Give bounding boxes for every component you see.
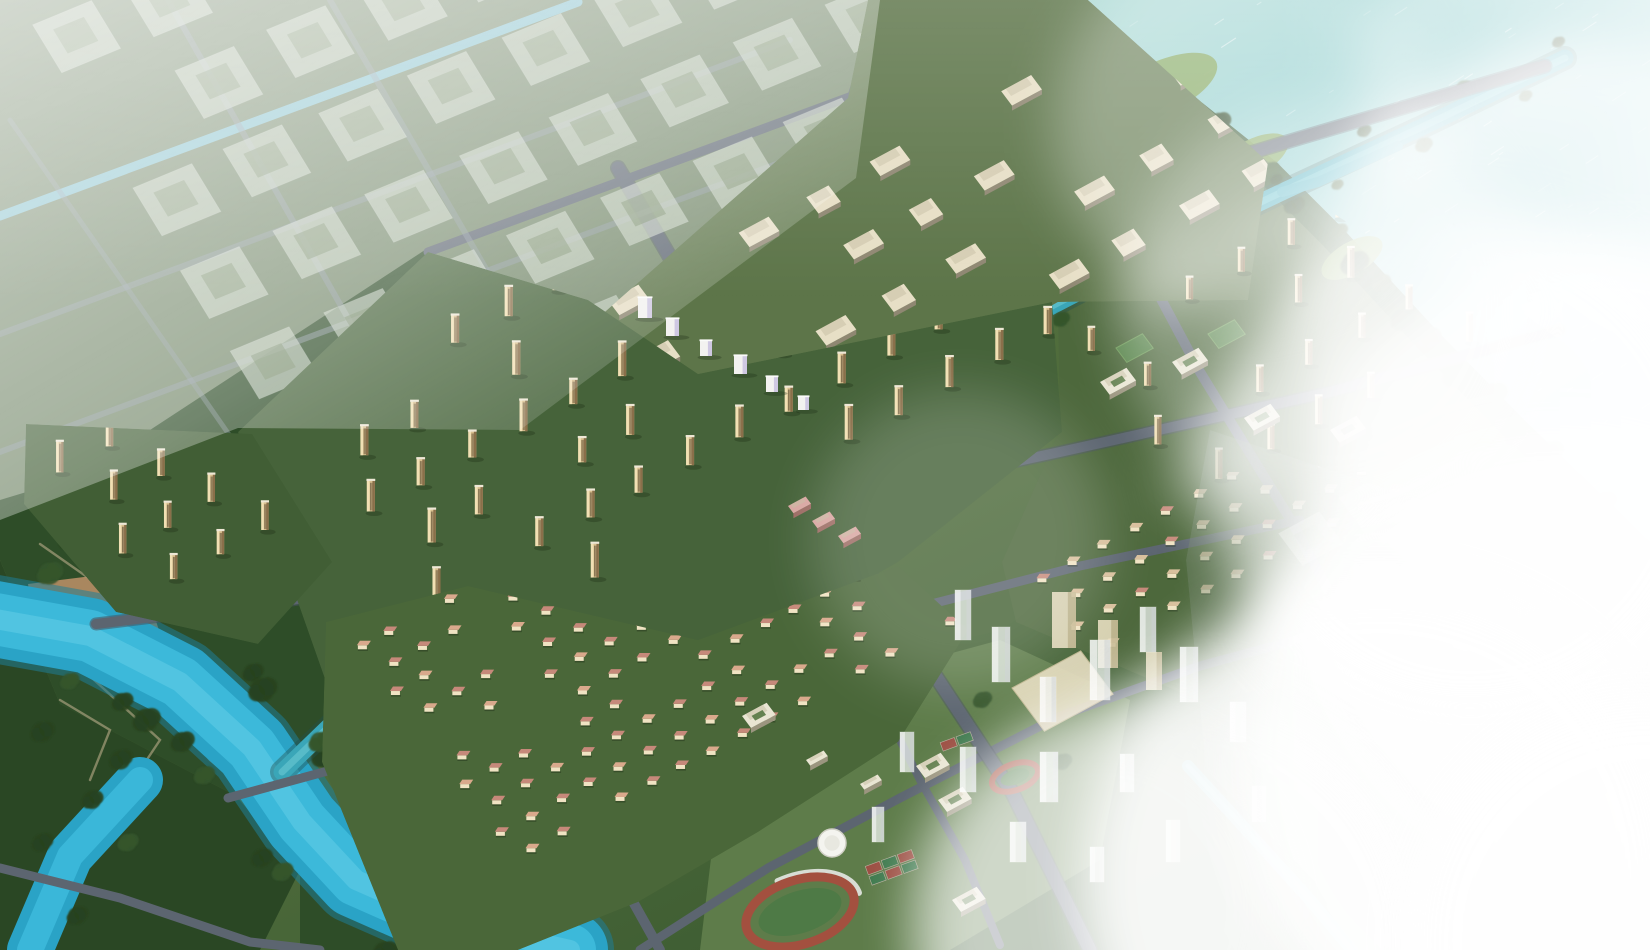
tree-clump xyxy=(171,738,185,752)
ghost-tower xyxy=(1140,607,1156,652)
tree-clump xyxy=(82,796,95,809)
tree-clump xyxy=(251,854,264,867)
tree-clump xyxy=(67,912,79,924)
tree-clump xyxy=(60,678,71,689)
ghost-tower xyxy=(872,807,884,842)
tree-clump xyxy=(118,839,130,851)
ghost-tower xyxy=(1090,640,1110,700)
tree-clump xyxy=(133,715,149,731)
aerial-master-plan-rendering xyxy=(0,0,1650,950)
tree-clump xyxy=(309,738,323,752)
fog-patch xyxy=(810,390,1110,690)
tree-clump xyxy=(31,728,45,742)
tree-clump xyxy=(109,755,123,769)
tree-clump xyxy=(112,698,125,711)
tree-clump xyxy=(243,669,255,681)
tree-clump xyxy=(973,696,984,707)
dome-hall xyxy=(818,829,846,857)
tree-clump xyxy=(194,772,206,784)
tree-clump xyxy=(32,839,45,852)
ghost-tower xyxy=(900,732,914,772)
ghost-tower xyxy=(1040,677,1056,722)
tree-clump xyxy=(248,685,265,702)
rendering-canvas xyxy=(0,0,1650,950)
tree-clump xyxy=(1053,316,1063,326)
tree-clump xyxy=(272,868,285,881)
tree-clump xyxy=(37,569,52,584)
